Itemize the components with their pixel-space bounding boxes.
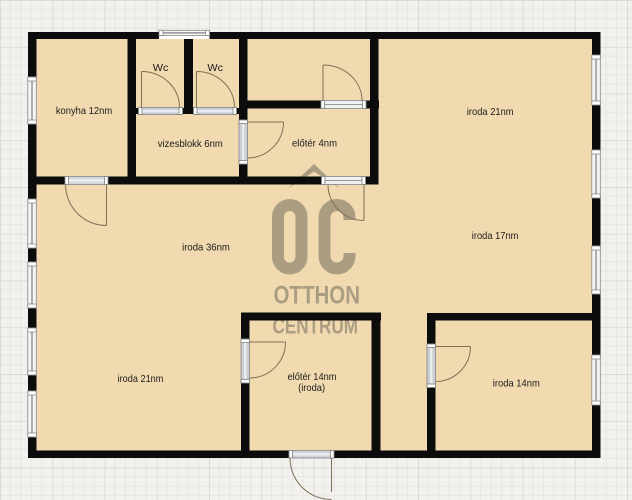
svg-text:iroda 17nm: iroda 17nm [472,230,519,242]
svg-text:előtér 4nm: előtér 4nm [292,138,337,150]
svg-text:Wc: Wc [153,62,169,74]
svg-text:(iroda): (iroda) [298,382,325,394]
svg-text:konyha 12nm: konyha 12nm [56,105,113,117]
svg-text:Wc: Wc [207,62,223,74]
svg-text:OTTHON: OTTHON [274,282,361,310]
svg-text:iroda 14nm: iroda 14nm [493,377,540,389]
svg-text:vizesblokk 6nm: vizesblokk 6nm [158,138,223,150]
svg-text:iroda 21nm: iroda 21nm [118,373,164,385]
svg-text:iroda 36nm: iroda 36nm [182,242,230,254]
svg-text:iroda 21nm: iroda 21nm [467,106,514,118]
